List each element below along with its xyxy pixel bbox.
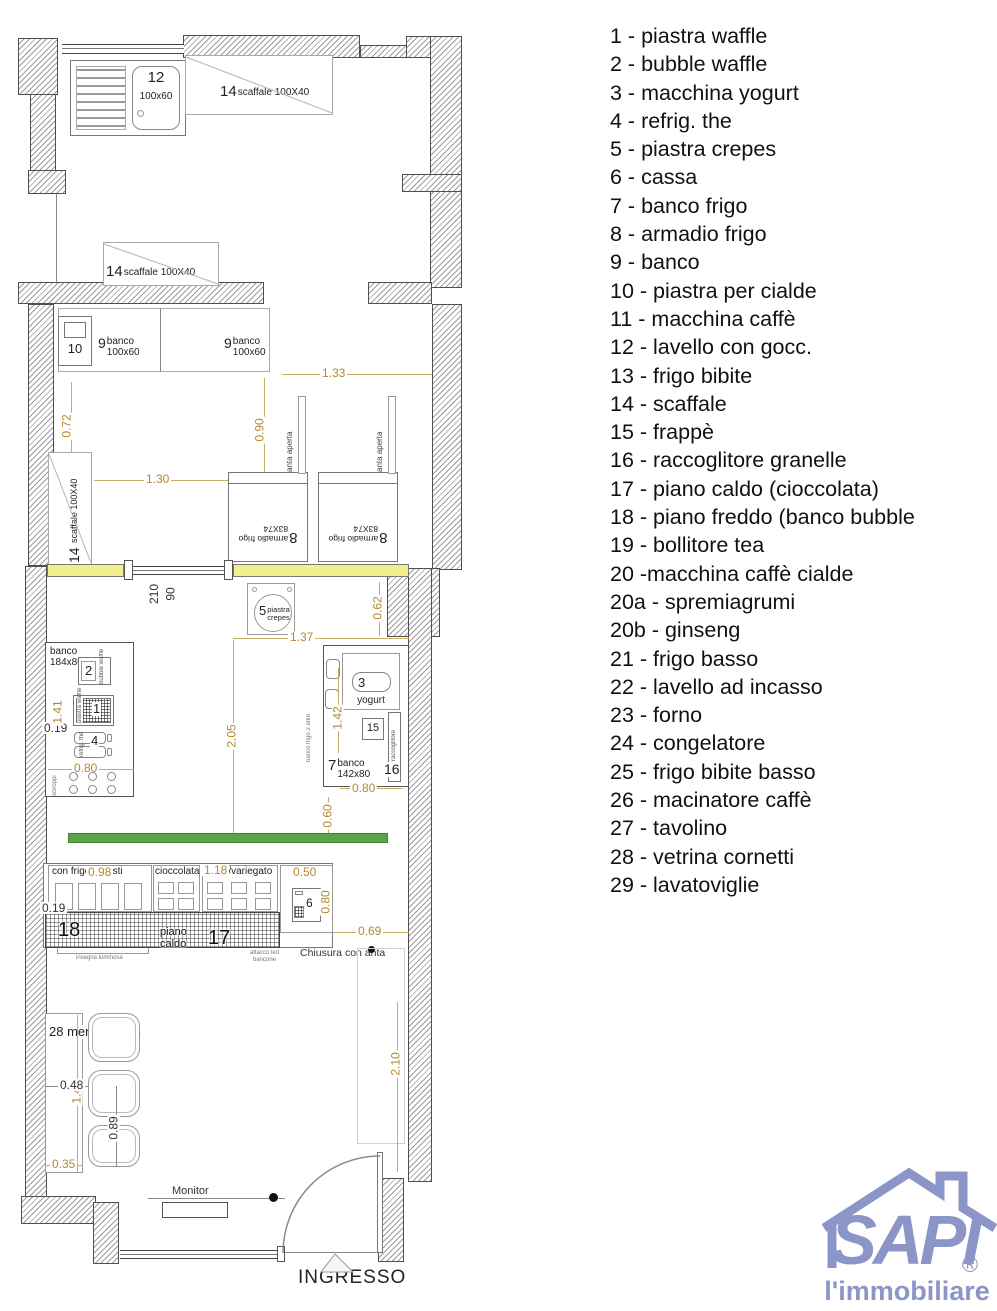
banco9-number: 9 [98, 336, 106, 351]
wall-segment [18, 38, 58, 95]
dimension-label: 0.35 [50, 1158, 77, 1170]
unit-1-side-label: piastra waffle [77, 698, 83, 723]
stool [88, 1013, 140, 1062]
anta-aperta-text: anta aperta [375, 432, 384, 472]
sapi-house-icon: SAPI ® l'immobiliare [812, 1160, 997, 1308]
display-tray [124, 883, 142, 910]
open-door-leaf [388, 396, 396, 474]
anta-aperta-label: anta aperta [376, 400, 384, 472]
legend-item: 13 - frigo bibite [610, 362, 997, 390]
legend-item: 11 - macchina caffè [610, 305, 997, 333]
unit-2-side-label: bubble waffle [99, 659, 105, 684]
legend-item: 20b - ginseng [610, 616, 997, 644]
unit-4-side-label: refrig. the [79, 733, 85, 757]
display-cell [231, 898, 247, 910]
front-sec2-text: cioccolata [155, 866, 199, 877]
legend-item: 24 - congelatore [610, 729, 997, 757]
shelf-top-label: 14 scaffale 100X40 [220, 84, 309, 100]
entrance-door-leaf [377, 1152, 383, 1253]
highlighted-wall [47, 564, 124, 577]
unit-3-name-text: yogurt [357, 695, 385, 706]
knobs-side-label: sciroppi [52, 770, 58, 796]
dimension-label: 210 [148, 582, 160, 606]
highlighted-wall [233, 564, 409, 577]
unit-17-number: 17 [208, 928, 230, 948]
unit-3-label: yogurt [342, 696, 400, 707]
legend-item: 19 - bollitore tea [610, 531, 997, 559]
unit-4-num-text: 4 [91, 733, 98, 748]
dimension-label: 1.37 [288, 631, 315, 643]
banco9-name: banco [107, 336, 140, 347]
burner-knob [88, 772, 97, 781]
unit-2-number: 2 [84, 664, 93, 678]
dimension-label: 0.89 [108, 1114, 120, 1141]
dim-line [282, 374, 432, 375]
counter-left-name: banco [50, 646, 83, 657]
counter-right-name: banco [337, 758, 370, 769]
dimension-label: 1.41 [52, 698, 64, 725]
monitor-desk [162, 1202, 228, 1218]
unit-5-label: 5 piastra crepes [259, 604, 290, 623]
legend-item: 16 - raccoglitore granelle [610, 446, 997, 474]
sink-label: 12 100x60 [132, 70, 180, 104]
banco9-label-left: 9 banco 100x60 [98, 336, 140, 358]
door-swing-arc [283, 1156, 380, 1253]
counter-divider [160, 308, 161, 372]
unit-10-label: 10 [58, 342, 92, 356]
door-opening [133, 566, 224, 575]
storefront-glazing [120, 1250, 277, 1259]
dimension-label: 0.62 [372, 594, 384, 621]
banco9-number: 9 [224, 336, 232, 351]
unit-3-number: 3 [358, 676, 365, 690]
display-tray [78, 883, 96, 910]
legend-item: 15 - frappè [610, 418, 997, 446]
unit-4-knob [107, 734, 112, 742]
wall-segment [408, 568, 432, 1182]
banco9-size: 100x60 [233, 347, 266, 358]
legend-item: 3 - macchina yogurt [610, 79, 997, 107]
monitor-label: Monitor [172, 1186, 209, 1198]
insegna-bracket [57, 948, 149, 954]
legend-item: 2 - bubble waffle [610, 50, 997, 78]
attacco-text: bancone [253, 957, 276, 963]
dimension-label: 0.80 [350, 782, 377, 794]
armadio-number: 8 [289, 529, 297, 545]
cassa-keypad [294, 906, 304, 918]
unit-1-num-text: 1 [93, 701, 100, 716]
svg-text:l'immobiliare: l'immobiliare [824, 1276, 989, 1306]
unit-3-num-text: 3 [358, 675, 365, 690]
legend-item: 25 - frigo bibite basso [610, 758, 997, 786]
monitor-text: Monitor [172, 1185, 209, 1197]
legend-item: 27 - tavolino [610, 814, 997, 842]
unit-16-number: 16 [384, 762, 400, 777]
display-tray [101, 883, 119, 910]
unit-4-side-text: refrig. the [79, 732, 85, 757]
svg-text:SAPI: SAPI [830, 1201, 983, 1279]
dimension-label: 0.48 [58, 1079, 85, 1091]
dimension-label: 0.19 [40, 902, 67, 914]
wall-segment [402, 174, 462, 192]
unit-4-number: 4 [90, 734, 99, 748]
armadio-frigo-2 [318, 472, 398, 562]
legend-item: 5 - piastra crepes [610, 135, 997, 163]
shelf-number: 14 [106, 264, 123, 280]
banco-frigo-ante-label: banco frigo 2 ante [306, 700, 312, 762]
dimension-label: 0.69 [356, 925, 383, 937]
unit-10-number: 10 [68, 341, 82, 356]
shelf-text: scaffale 100X40 [69, 479, 79, 543]
wall-segment [93, 1202, 119, 1264]
unit-2-side-text: bubble waffle [99, 649, 105, 684]
armadio-frigo-2-label: 8 armadio frigo 83X74 [324, 524, 392, 545]
bench-strip [68, 833, 388, 843]
agency-logo: SAPI ® l'immobiliare [812, 1160, 997, 1308]
legend-item: 8 - armadio frigo [610, 220, 997, 248]
armadio-number: 8 [379, 529, 387, 545]
legend-item: 18 - piano freddo (banco bubble [610, 503, 997, 531]
legend-item: 20a - spremiagrumi [610, 588, 997, 616]
burner-knob [107, 772, 116, 781]
legend-item: 10 - piastra per cialde [610, 277, 997, 305]
legend-item: 12 - lavello con gocc. [610, 333, 997, 361]
dimension-label: 90 [165, 585, 177, 602]
shelf-left-label: 14 scaffale 100X40 [66, 468, 82, 563]
monitor-line [148, 1198, 285, 1199]
sink-number: 12 [148, 69, 165, 86]
legend-item: 4 - refrig. the [610, 107, 997, 135]
wall-segment [432, 304, 462, 570]
counter-right-label: 7 banco 142x80 [328, 758, 370, 780]
display-cell [207, 898, 223, 910]
open-door-leaf [298, 396, 306, 474]
legend-item: 28 - vetrina cornetti [610, 843, 997, 871]
unit-10-top [64, 322, 86, 338]
display-cell [178, 882, 194, 894]
display-cell [231, 882, 247, 894]
shelf-number: 14 [66, 547, 82, 563]
attacco-text: attacco led [250, 950, 279, 956]
armadio-frigo-1-label: 8 armadio frigo 83X74 [234, 524, 302, 545]
burner-knob [107, 785, 116, 794]
unit-1-number: 1 [92, 702, 101, 716]
display-cell [255, 882, 271, 894]
unit-5-screw [287, 587, 292, 592]
wall-line [56, 194, 57, 282]
window [62, 44, 184, 54]
dimension-label: 0.90 [254, 416, 266, 443]
unit-5-text: crepes [267, 614, 290, 622]
door-jamb [124, 560, 133, 580]
attacco-label: attacco led bancone [250, 950, 279, 964]
stool [88, 1070, 140, 1117]
armadio-frigo-1 [228, 472, 308, 562]
legend-item: 14 - scaffale [610, 390, 997, 418]
legend-item: 21 - frigo basso [610, 645, 997, 673]
ingresso-text: INGRESSO [298, 1267, 406, 1288]
monitor-dot [269, 1193, 278, 1202]
door-frame [277, 1246, 285, 1262]
legend-item: 1 - piastra waffle [610, 22, 997, 50]
armadio-name: armadio frigo [239, 534, 289, 544]
knobs-side-text: sciroppi [52, 775, 58, 796]
display-cell [255, 898, 271, 910]
dimension-label: 1.30 [144, 473, 171, 485]
dimension-label: 0.72 [61, 412, 73, 439]
burner-knob [69, 772, 78, 781]
unit-1-side-text: piastra waffle [77, 688, 83, 723]
cassa-num-text: 6 [306, 896, 313, 910]
front-section-cioccolata-label: cioccolata [155, 867, 199, 878]
unit-18-num-text: 18 [58, 919, 80, 941]
anta-aperta-label: anta aperta [286, 400, 294, 472]
unit-5-screw [252, 587, 257, 592]
armadio-size: 83X74 [329, 524, 379, 534]
banco9-label-right: 9 banco 100x60 [224, 336, 266, 358]
wall-segment [28, 170, 66, 194]
door-jamb [224, 560, 233, 580]
cassa-display [295, 891, 303, 895]
unit-16-num-text: 16 [384, 761, 400, 777]
legend-item: 23 - forno [610, 701, 997, 729]
piano-caldo-text: piano [160, 926, 187, 938]
legend-item: 6 - cassa [610, 163, 997, 191]
piano-caldo-label: piano caldo [160, 926, 187, 950]
svg-text:®: ® [962, 1252, 978, 1277]
banco-frigo-ante-text: banco frigo 2 ante [306, 714, 312, 762]
unit-17-num-text: 17 [208, 927, 230, 949]
armadio-name: armadio frigo [329, 534, 379, 544]
ingresso-label: INGRESSO [298, 1268, 406, 1288]
dimension-label: 0.60 [322, 802, 334, 829]
shelf-number: 14 [220, 84, 237, 100]
shelf-text: scaffale 100X40 [238, 88, 310, 99]
dim-line [233, 638, 409, 639]
door-threshold [285, 1252, 380, 1253]
armadio-frigo-1-door [228, 472, 308, 484]
burner-knob [69, 785, 78, 794]
anta-aperta-text: anta aperta [285, 432, 294, 472]
insegna-text: insegna luminosa [76, 955, 123, 961]
shelf-text: scaffale 100X40 [124, 268, 196, 279]
unit-16-side-text: raccoglitore [391, 730, 397, 761]
sink-size: 100x60 [140, 91, 173, 102]
armadio-frigo-2-door [318, 472, 398, 484]
cassa-number: 6 [306, 897, 313, 910]
counter-right-size: 142x80 [337, 769, 370, 780]
drain-hole [137, 110, 144, 117]
display-cell [207, 882, 223, 894]
armadio-size: 83X74 [239, 524, 289, 534]
dimension-label: 0.50 [291, 866, 318, 878]
piano-caldo-text: caldo [160, 938, 186, 950]
unit-16-side-label: raccoglitore [391, 716, 397, 761]
shelf-bottom-label: 14 scaffale 100X40 [106, 264, 195, 280]
legend-item: 26 - macinatore caffè [610, 786, 997, 814]
display-cell [158, 882, 174, 894]
drainboard [76, 66, 126, 130]
dimension-label: 0.80 [320, 888, 332, 915]
legend-item: 29 - lavatoviglie [610, 871, 997, 899]
unit-4-knob [107, 748, 112, 756]
unit-5-number: 5 [259, 604, 266, 618]
unit-15-number: 15 [362, 723, 384, 735]
dimension-label: 2.05 [226, 722, 238, 749]
counter-right-number: 7 [328, 758, 336, 774]
dimension-label: 1.33 [320, 367, 347, 379]
legend-item: 20 -macchina caffè cialde [610, 560, 997, 588]
insegna-label: insegna luminosa [76, 955, 123, 961]
floor-plan-page: 12 100x60 14 scaffale 100X40 14 scaffale… [0, 0, 997, 1311]
unit-15-num-text: 15 [367, 722, 379, 734]
dimension-label: 1.42 [332, 704, 344, 731]
wall-segment [360, 45, 407, 58]
legend-item: 7 - banco frigo [610, 192, 997, 220]
floor-plan: 12 100x60 14 scaffale 100X40 14 scaffale… [0, 0, 500, 1311]
banco9-size: 100x60 [107, 347, 140, 358]
legend-item: 17 - piano caldo (cioccolata) [610, 475, 997, 503]
display-cell [158, 898, 174, 910]
burner-knob [88, 785, 97, 794]
dimension-label: 2.10 [390, 1050, 402, 1077]
legend-item: 9 - banco [610, 248, 997, 276]
unit-2-num-text: 2 [85, 663, 92, 678]
wall-segment [368, 282, 432, 304]
wall-segment [430, 36, 462, 288]
display-cell [178, 898, 194, 910]
unit-18-number: 18 [58, 920, 80, 940]
banco9-name: banco [233, 336, 266, 347]
dim-line [397, 1002, 398, 1172]
wall-segment [21, 1196, 96, 1224]
dimension-label: 1.18 [202, 864, 229, 876]
legend-list: 1 - piastra waffle2 - bubble waffle3 - m… [610, 22, 997, 899]
legend-item: 22 - lavello ad incasso [610, 673, 997, 701]
dimension-label: 0.98 [86, 866, 113, 878]
